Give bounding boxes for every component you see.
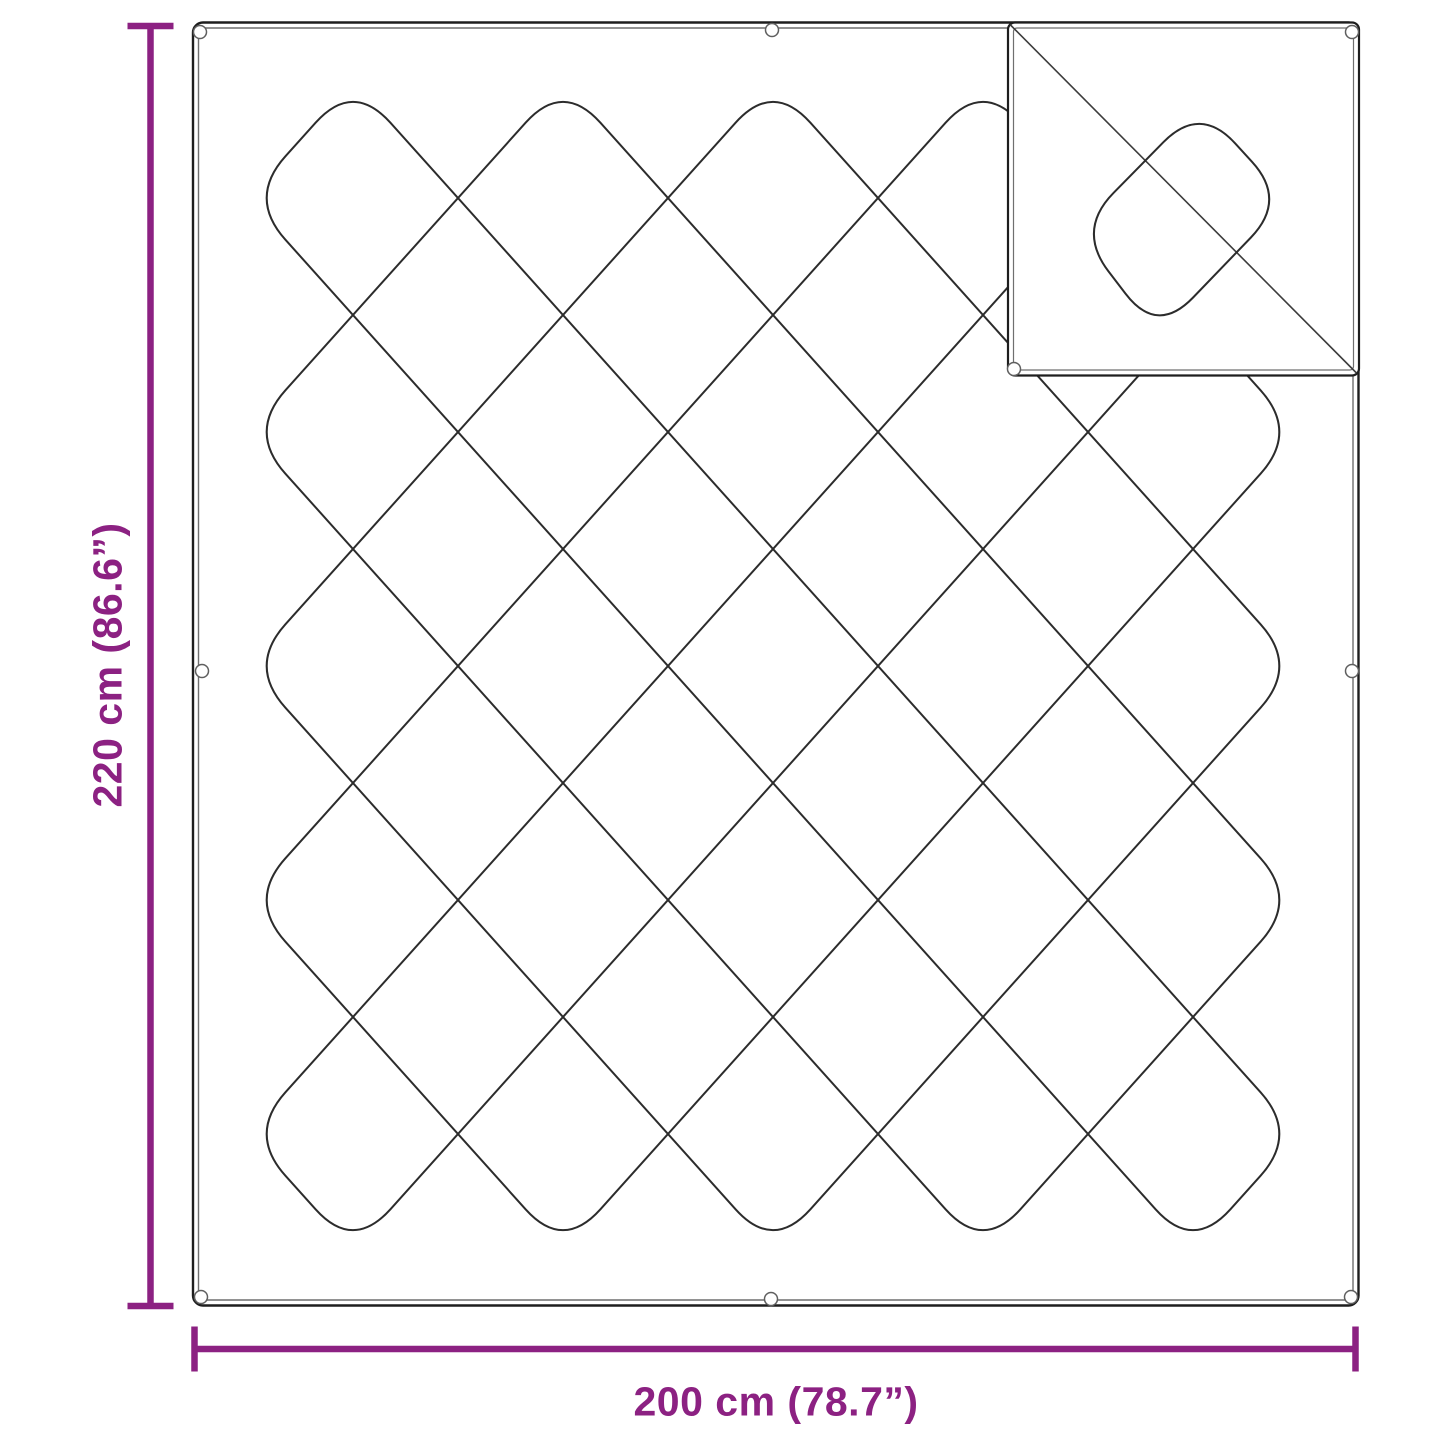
grommet-icon [766,24,779,37]
grommet-icon [1346,26,1359,39]
width-dimension-line [195,1327,1356,1372]
diagram-canvas [0,0,1445,1445]
grommet-icon [1345,1291,1358,1304]
grommet-icon [196,665,209,678]
width-dimension-label: 200 cm (78.7”) [633,1379,918,1426]
corner-flap [1008,23,1359,376]
grommet-icon [1346,665,1359,678]
blanket-dimension-diagram: 220 cm (86.6”) 200 cm (78.7”) [0,0,1445,1445]
height-dimension-line [128,26,174,1306]
grommet-icon [195,1291,208,1304]
height-dimension-label: 220 cm (86.6”) [85,522,132,807]
grommet-icon [1008,363,1021,376]
grommet-icon [194,26,207,39]
grommet-icon [765,1293,778,1306]
